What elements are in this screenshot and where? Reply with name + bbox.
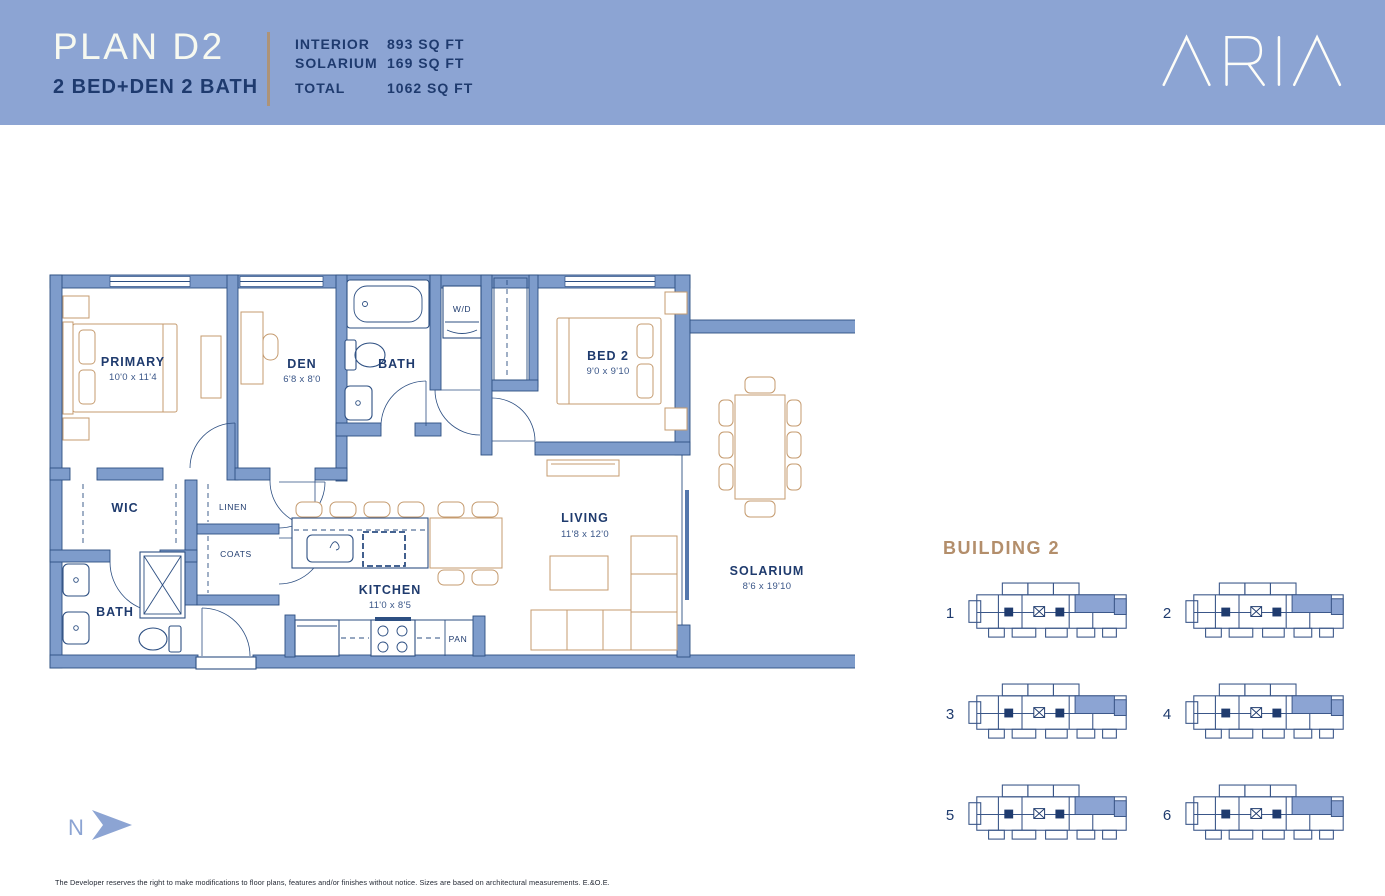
plan-subtitle: 2 BED+DEN 2 BATH: [53, 76, 258, 99]
room-label-coats: COATS: [220, 549, 252, 559]
keyplan-number: 2: [1160, 605, 1174, 622]
den-desk: [241, 312, 278, 384]
header-divider: [267, 32, 270, 106]
keyplan-number: 5: [943, 807, 957, 824]
toilet-icon: [139, 626, 181, 652]
stat-row-interior: INTERIOR 893 SQ FT: [295, 36, 497, 52]
stat-row-solarium: SOLARIUM 169 SQ FT: [295, 55, 497, 71]
header-band: PLAN D2 2 BED+DEN 2 BATH INTERIOR 893 SQ…: [0, 0, 1385, 125]
keyplan-5: 5: [943, 777, 1146, 854]
room-label-primary: PRIMARY: [101, 355, 165, 369]
keyplan-2: 2: [1160, 575, 1363, 652]
room-label-kitchen: KITCHEN: [359, 583, 422, 597]
room-dim-living: 11'8 x 12'0: [561, 529, 609, 540]
shower-icon: [140, 552, 185, 618]
building-diagram-icon: [1182, 575, 1354, 652]
coffee-table: [550, 556, 608, 590]
room-label-bath-ensuite: BATH: [96, 605, 134, 619]
room-dim-den: 6'8 x 8'0: [283, 374, 321, 385]
keyplan-number: 1: [943, 605, 957, 622]
entry-threshold: [196, 657, 256, 669]
room-dim-primary: 10'0 x 11'4: [109, 372, 157, 383]
aria-logo: [1158, 30, 1358, 92]
building-keyplans: BUILDING 2 1 2 3 4 5 6: [943, 538, 1363, 854]
stat-label: INTERIOR: [295, 36, 387, 52]
keyplan-1: 1: [943, 575, 1146, 652]
room-label-wic: WIC: [111, 501, 138, 515]
room-dim-solarium: 8'6 x 19'10: [743, 581, 792, 592]
stat-label: SOLARIUM: [295, 55, 387, 71]
dining-table: [430, 502, 502, 585]
building-diagram-icon: [965, 777, 1137, 854]
keyplan-4: 4: [1160, 676, 1363, 753]
nightstand: [665, 408, 687, 430]
disclaimer-text: The Developer reserves the right to make…: [55, 878, 610, 887]
media-console: [547, 460, 619, 476]
kitchen-island: [292, 518, 428, 568]
island-stools: [296, 502, 424, 517]
floorplan-sheet: { "header": { "plan_name": "PLAN D2", "p…: [0, 0, 1385, 896]
north-chevron: [92, 810, 132, 840]
sliding-door-panel: [685, 490, 689, 600]
nightstand: [63, 296, 89, 318]
room-label-den: DEN: [287, 357, 316, 371]
fridge-icon: [295, 620, 339, 656]
stat-value: 1062 SQ FT: [387, 80, 497, 96]
sofa: [531, 536, 677, 650]
keyplan-6: 6: [1160, 777, 1363, 854]
building-diagram-icon: [965, 575, 1137, 652]
north-label: N: [68, 815, 84, 840]
room-label-linen: LINEN: [219, 502, 247, 512]
room-label-living: LIVING: [561, 511, 609, 525]
room-label-bed2: BED 2: [587, 349, 629, 363]
room-label-bath-main: BATH: [378, 357, 416, 371]
nightstand: [63, 418, 89, 440]
keyplan-number: 4: [1160, 706, 1174, 723]
area-stats: INTERIOR 893 SQ FT SOLARIUM 169 SQ FT TO…: [295, 36, 497, 99]
building-diagram-icon: [1182, 676, 1354, 753]
building-diagram-icon: [965, 676, 1137, 753]
building-diagram-icon: [1182, 777, 1354, 854]
keyplan-3: 3: [943, 676, 1146, 753]
room-dim-bed2: 9'0 x 9'10: [586, 366, 629, 377]
solarium-table: [719, 377, 801, 517]
stat-value: 169 SQ FT: [387, 55, 497, 71]
north-arrow-icon: N: [66, 804, 142, 846]
stat-value: 893 SQ FT: [387, 36, 497, 52]
floorplan-drawing: PRIMARY 10'0 x 11'4 DEN 6'8 x 8'0 BATH W…: [45, 260, 855, 675]
stat-label: TOTAL: [295, 80, 387, 96]
sink-icon: [63, 564, 89, 644]
stat-row-total: TOTAL 1062 SQ FT: [295, 80, 497, 96]
sink-icon: [345, 386, 372, 420]
room-label-solarium: SOLARIUM: [730, 564, 805, 578]
page-title: PLAN D2: [53, 26, 225, 68]
nightstand: [665, 292, 687, 314]
room-dim-kitchen: 11'0 x 8'5: [369, 600, 411, 611]
keyplan-grid: 1 2 3 4 5 6: [943, 575, 1363, 854]
dresser: [201, 336, 221, 398]
keyplan-number: 3: [943, 706, 957, 723]
room-label-wd: W/D: [453, 304, 471, 314]
room-label-pan: PAN: [449, 634, 468, 644]
keyplan-number: 6: [1160, 807, 1174, 824]
keyplan-heading: BUILDING 2: [943, 538, 1363, 559]
bathtub-icon: [347, 280, 429, 328]
